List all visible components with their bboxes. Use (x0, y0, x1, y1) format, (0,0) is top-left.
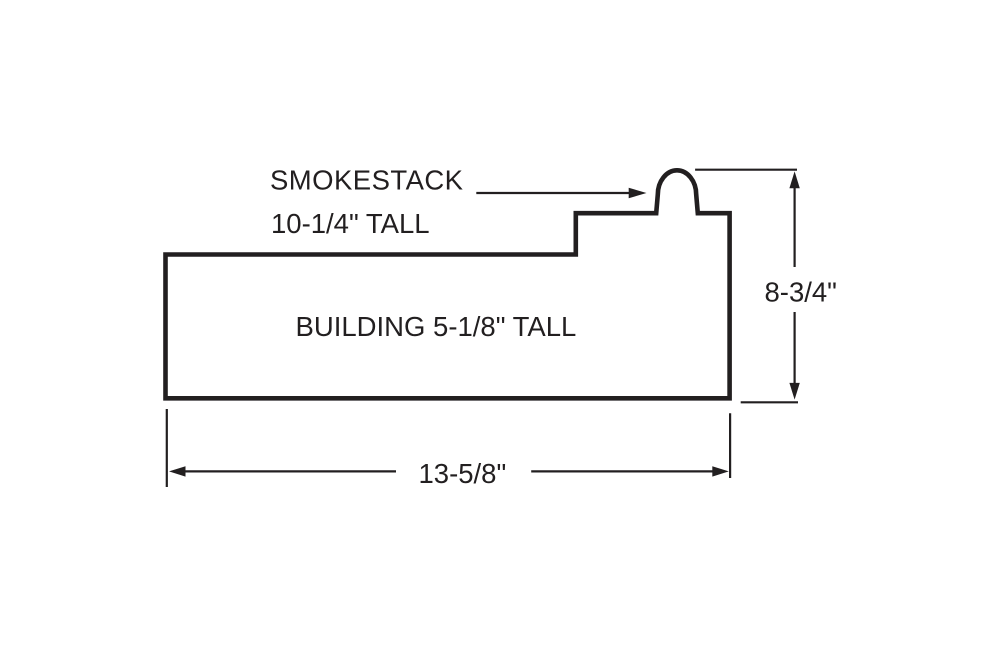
svg-text:SMOKESTACK: SMOKESTACK (270, 164, 464, 195)
svg-text:10-1/4" TALL: 10-1/4" TALL (271, 208, 430, 239)
svg-text:13-5/8": 13-5/8" (419, 458, 507, 489)
svg-text:8-3/4": 8-3/4" (765, 277, 837, 308)
svg-text:BUILDING 5-1/8" TALL: BUILDING 5-1/8" TALL (296, 311, 577, 342)
